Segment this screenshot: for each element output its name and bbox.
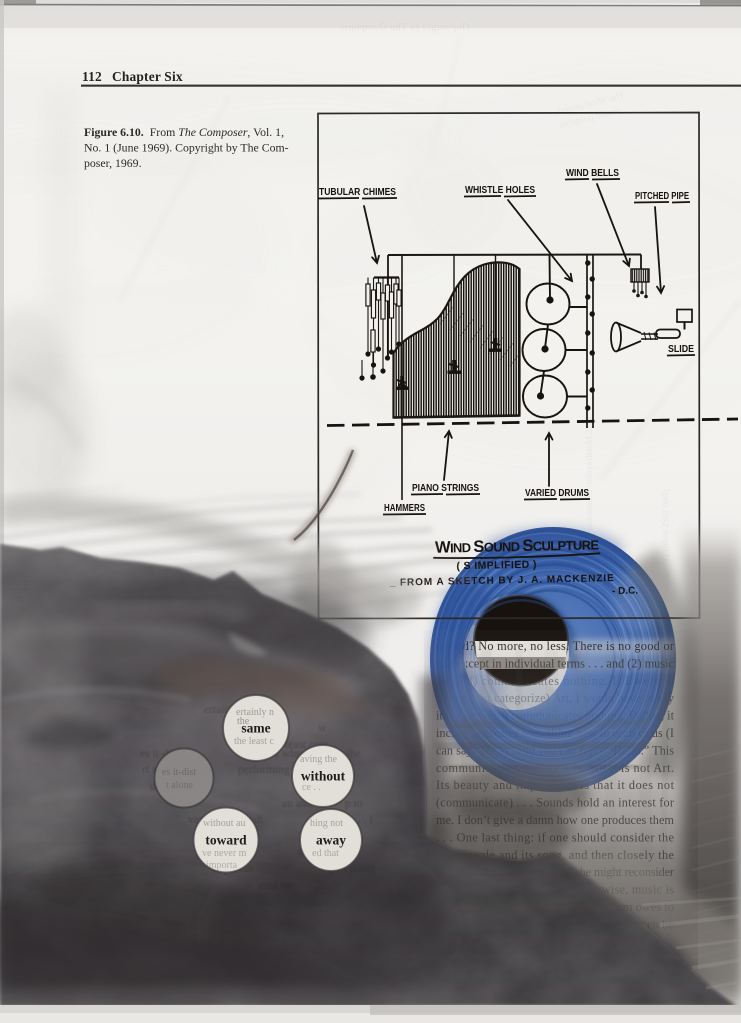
svg-text:PITCHED PIPE: PITCHED PIPE (635, 191, 689, 202)
svg-text:hing not: hing not (310, 818, 343, 829)
svg-text:same: same (241, 721, 270, 736)
svg-text:112: 112 (82, 69, 102, 84)
svg-text:ed that: ed that (312, 848, 339, 859)
svg-text:importa: importa (206, 860, 238, 871)
svg-text:nohnombH nsdnswdtuoM 2123: nohnombH nsdnswdtuoM 2123 (584, 415, 594, 530)
svg-text:t alone: t alone (166, 780, 193, 791)
svg-text:performing: performing (238, 764, 290, 776)
svg-text:poser, 1969.: poser, 1969. (84, 156, 142, 170)
svg-text:HAMMERS: HAMMERS (384, 503, 425, 514)
svg-text:PIANO STRINGS: PIANO STRINGS (412, 483, 479, 494)
svg-text:SLIDE: SLIDE (668, 344, 694, 355)
svg-text:ce . .: ce . . (302, 782, 321, 793)
svg-text:TUBULAR CHIMES: TUBULAR CHIMES (319, 187, 396, 198)
svg-text:w: w (318, 722, 327, 734)
svg-text:No. 1 (June 1969). Copyright b: No. 1 (June 1969). Copyright by The Com- (84, 141, 289, 155)
svg-text:Chapter Six: Chapter Six (112, 69, 183, 84)
svg-text:VARIED DRUMS: VARIED DRUMS (525, 488, 589, 499)
svg-text:p to: p to (345, 798, 363, 810)
svg-text:without au: without au (203, 818, 246, 829)
svg-text:ve never m: ve never m (202, 848, 247, 859)
svg-text:Figure 6.10.From The Composer,: Figure 6.10.From The Composer, Vol. 1, (84, 125, 284, 139)
svg-text:toward: toward (205, 833, 247, 848)
svg-text:erqoqmoD udT vs tdginvqoD: erqoqmoD udT vs tdginvqoD (340, 21, 470, 33)
svg-text:aving the: aving the (300, 754, 337, 765)
svg-text:( S IMPLIFIED ): ( S IMPLIFIED ) (456, 559, 536, 573)
svg-text:the least c: the least c (234, 736, 275, 747)
svg-text:without: without (301, 769, 346, 784)
svg-text:es it-dist: es it-dist (162, 767, 196, 778)
svg-text:WIND BELLS: WIND BELLS (566, 168, 619, 179)
svg-text:WHISTLE HOLES: WHISTLE HOLES (465, 185, 535, 196)
svg-text:med tw: med tw (258, 880, 293, 892)
svg-text:- D.C.: - D.C. (612, 586, 639, 598)
svg-text:away: away (316, 833, 346, 848)
